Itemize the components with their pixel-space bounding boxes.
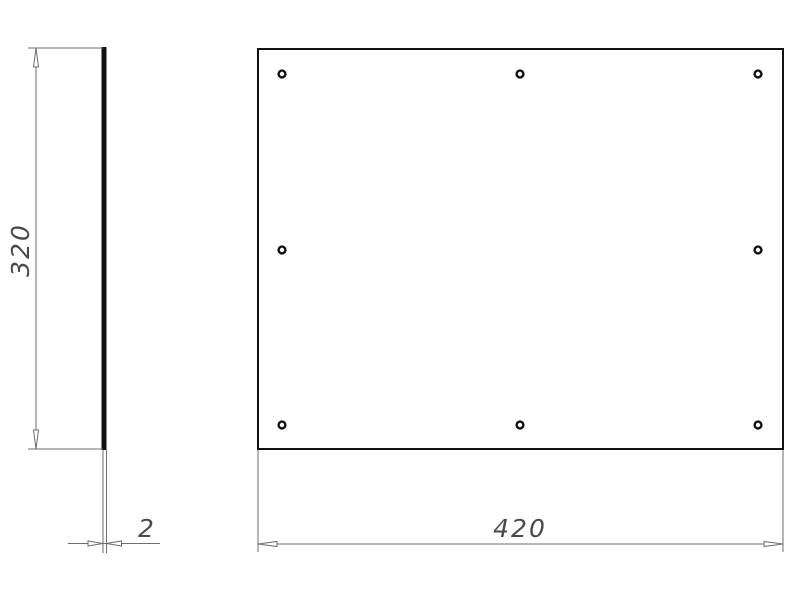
side-view: 320 2 <box>6 47 160 553</box>
front-view-plate-outline <box>258 49 783 449</box>
width-dim-label: 420 <box>493 514 547 543</box>
mounting-hole-5 <box>755 247 762 254</box>
front-view: 420 <box>258 49 783 552</box>
mounting-hole-4 <box>279 247 286 254</box>
height-dim-arrow-up <box>34 48 39 67</box>
side-view-plate-edge <box>102 47 107 450</box>
mounting-hole-1 <box>279 71 286 78</box>
mounting-hole-8 <box>755 422 762 429</box>
mounting-hole-6 <box>279 422 286 429</box>
mounting-hole-3 <box>755 71 762 78</box>
width-dim-arrow-right <box>764 542 783 547</box>
thickness-dim-arrow-left <box>88 541 103 546</box>
width-dim-arrow-left <box>258 542 277 547</box>
thickness-dim-label: 2 <box>138 514 156 543</box>
drawing-canvas: 320 2 420 <box>0 0 800 600</box>
thickness-dim-arrow-right <box>107 541 122 546</box>
mounting-hole-7 <box>517 422 524 429</box>
height-dim-arrow-down <box>34 430 39 449</box>
technical-drawing: 320 2 420 <box>0 0 800 600</box>
height-dim-label: 320 <box>6 223 35 277</box>
mounting-hole-2 <box>517 71 524 78</box>
